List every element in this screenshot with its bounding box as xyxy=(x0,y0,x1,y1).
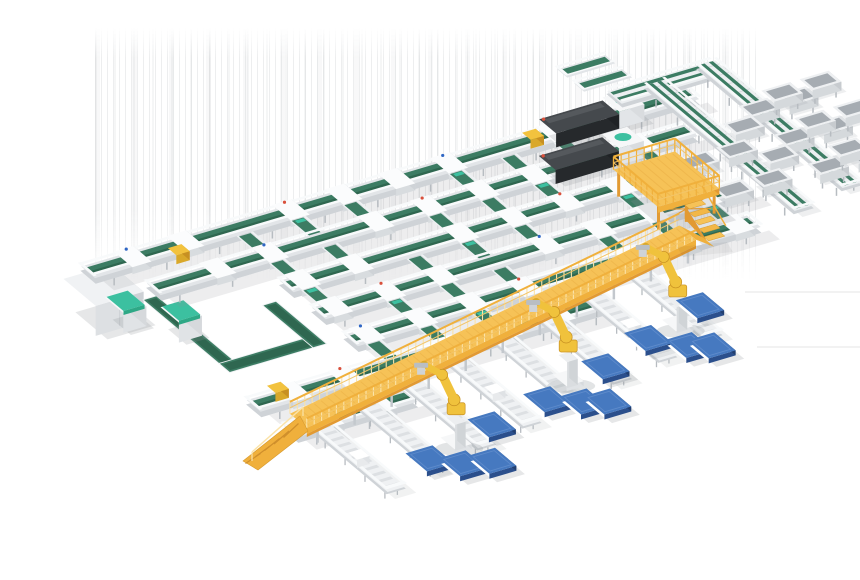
process-machine xyxy=(161,300,210,344)
sorting-facility-scene xyxy=(0,0,860,580)
facility-render xyxy=(0,0,860,580)
